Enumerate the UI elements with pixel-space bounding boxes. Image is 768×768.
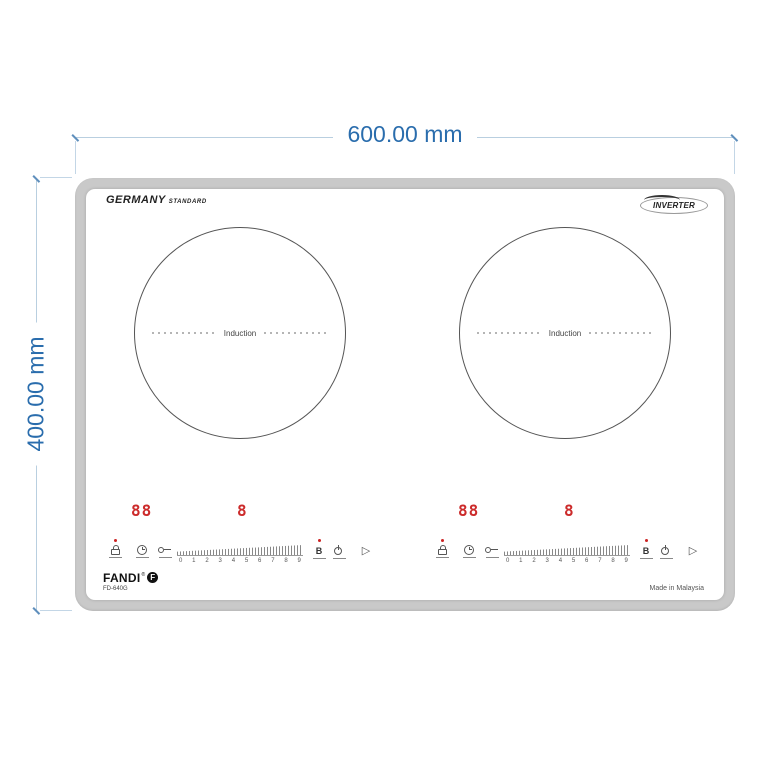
power-icon — [334, 545, 344, 556]
lock-key — [107, 539, 123, 558]
slider-number: 5 — [245, 558, 248, 564]
key-icon — [158, 545, 172, 555]
zone-dash-line — [589, 332, 653, 334]
slider-number: 2 — [205, 558, 208, 564]
slider-scale: 0123456789 — [504, 558, 630, 564]
slider-number: 8 — [611, 558, 614, 564]
key-underline — [640, 558, 653, 559]
model-number: FD-640G — [103, 586, 158, 592]
booster-key: B — [311, 539, 327, 559]
slider-number: 5 — [572, 558, 575, 564]
key-underline — [486, 557, 499, 558]
booster-led — [318, 539, 321, 542]
power-key — [658, 539, 674, 559]
key-underline — [436, 557, 449, 558]
booster-key: B — [638, 539, 654, 559]
slider-scale: 0123456789 — [177, 558, 303, 564]
zone-label: Induction — [549, 329, 581, 338]
key-icon — [485, 545, 499, 555]
power-key — [331, 539, 347, 559]
germany-standard-label: GERMANY STANDARD — [106, 194, 207, 206]
made-in-label: Made in Malaysia — [650, 585, 704, 592]
brand-logo-icon: F — [147, 572, 158, 583]
key-underline — [136, 557, 149, 558]
zone-dash-line — [264, 332, 328, 334]
registered-mark: ® — [142, 572, 146, 578]
power-level-display: 88 — [458, 501, 479, 520]
slider-number: 9 — [625, 558, 628, 564]
play-key: ▷ — [686, 539, 700, 557]
slider-number: 4 — [559, 558, 562, 564]
power-level-display: 88 — [131, 501, 152, 520]
timer-display: 8 — [237, 501, 248, 520]
slider-number: 3 — [546, 558, 549, 564]
height-dimension-label: 400.00 mm — [23, 322, 50, 465]
key-underline — [159, 557, 172, 558]
slider-number: 7 — [271, 558, 274, 564]
lock-led — [114, 539, 117, 542]
booster-led — [645, 539, 648, 542]
key-underline — [109, 557, 122, 558]
timer-display: 8 — [564, 501, 575, 520]
cooking-zone-right: Induction — [459, 227, 671, 439]
booster-label: B — [643, 546, 650, 556]
inverter-swoosh-icon — [644, 195, 680, 205]
key-underline — [333, 558, 346, 559]
slider-number: 1 — [519, 558, 522, 564]
slider-ramp-icon — [504, 545, 630, 556]
slider-number: 6 — [585, 558, 588, 564]
control-panel-right: 88 8 — [432, 501, 704, 581]
product-dimension-diagram: 600.00 mm 400.00 mm GERMANY STANDARD INV… — [0, 0, 768, 768]
function-key — [157, 539, 173, 558]
control-panel-left: 88 8 — [105, 501, 377, 581]
play-key: ▷ — [359, 539, 373, 557]
slider-number: 8 — [284, 558, 287, 564]
slider-number: 9 — [298, 558, 301, 564]
lock-icon — [438, 549, 447, 555]
clock-icon — [137, 545, 147, 555]
booster-label: B — [316, 546, 323, 556]
slider-number: 0 — [506, 558, 509, 564]
slider-number: 1 — [192, 558, 195, 564]
clock-icon — [464, 545, 474, 555]
standard-label: STANDARD — [169, 199, 207, 205]
key-underline — [463, 557, 476, 558]
power-slider: 0123456789 — [504, 539, 630, 564]
slider-number: 4 — [232, 558, 235, 564]
key-underline — [313, 558, 326, 559]
lock-led — [441, 539, 444, 542]
slider-number: 6 — [258, 558, 261, 564]
height-extension-line-top — [40, 177, 72, 178]
cooking-zone-left: Induction — [134, 227, 346, 439]
touch-controls: 0123456789 B ▷ — [432, 539, 704, 581]
brand-block: FANDI ® F FD-640G — [103, 572, 158, 592]
play-icon: ▷ — [362, 546, 370, 557]
cooktop-glass-surface: GERMANY STANDARD INVERTER Induction Indu… — [86, 189, 724, 600]
power-slider: 0123456789 — [177, 539, 303, 564]
function-key — [484, 539, 500, 558]
key-underline — [660, 558, 673, 559]
inverter-badge: INVERTER — [640, 197, 708, 214]
zone-label: Induction — [224, 329, 256, 338]
germany-label: GERMANY — [106, 194, 166, 206]
height-extension-line-bottom — [40, 610, 72, 611]
cooktop-frame: GERMANY STANDARD INVERTER Induction Indu… — [75, 178, 735, 611]
timer-key — [461, 539, 477, 558]
slider-number: 2 — [532, 558, 535, 564]
width-dimension-label: 600.00 mm — [333, 121, 476, 148]
lock-key — [434, 539, 450, 558]
slider-number: 3 — [219, 558, 222, 564]
timer-key — [134, 539, 150, 558]
zone-dash-line — [152, 332, 216, 334]
slider-number: 7 — [598, 558, 601, 564]
slider-number: 0 — [179, 558, 182, 564]
brand-name: FANDI — [103, 572, 141, 584]
lock-icon — [111, 549, 120, 555]
power-icon — [661, 545, 671, 556]
play-icon: ▷ — [689, 546, 697, 557]
zone-dash-line — [477, 332, 541, 334]
slider-ramp-icon — [177, 545, 303, 556]
